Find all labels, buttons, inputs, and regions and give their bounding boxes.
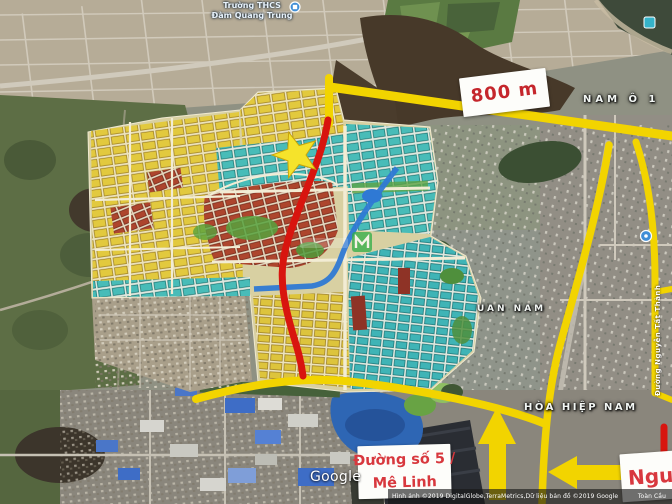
road5-line1: Đường số 5 /: [353, 448, 456, 473]
district-label-hoa-hiep-nam: HÒA HIỆP NAM: [524, 402, 638, 413]
district-label-nam-o: NAM Ô 1: [583, 94, 659, 105]
district-label-uan-nam: UAN NAM: [477, 304, 546, 314]
map-canvas[interactable]: Trường THCS Đàm Quang Trung NAM Ô 1 UAN …: [0, 0, 672, 504]
attribution-copyright: Hình ảnh ©2019 DigitalGlobe,TerraMetrics…: [392, 493, 618, 500]
coastal-road-label: Đường Nguyễn Tất Thành: [654, 288, 666, 396]
poi-marker-topright[interactable]: [644, 17, 655, 28]
nguyen-partial-text: Ngu: [627, 463, 672, 490]
school-label: Trường THCS Đàm Quang Trung: [192, 1, 312, 21]
school-label-line1: Trường THCS: [223, 1, 281, 10]
school-label-line2: Đàm Quang Trung: [212, 11, 293, 20]
satellite-map: [0, 0, 672, 504]
attribution-bar: Hình ảnh ©2019 DigitalGlobe,TerraMetrics…: [388, 489, 672, 504]
poi-marker-right[interactable]: [641, 231, 652, 242]
attribution-region[interactable]: Toàn Cầu: [638, 493, 666, 500]
distance-value: 800 m: [470, 78, 540, 107]
google-logo[interactable]: Google: [310, 469, 361, 485]
